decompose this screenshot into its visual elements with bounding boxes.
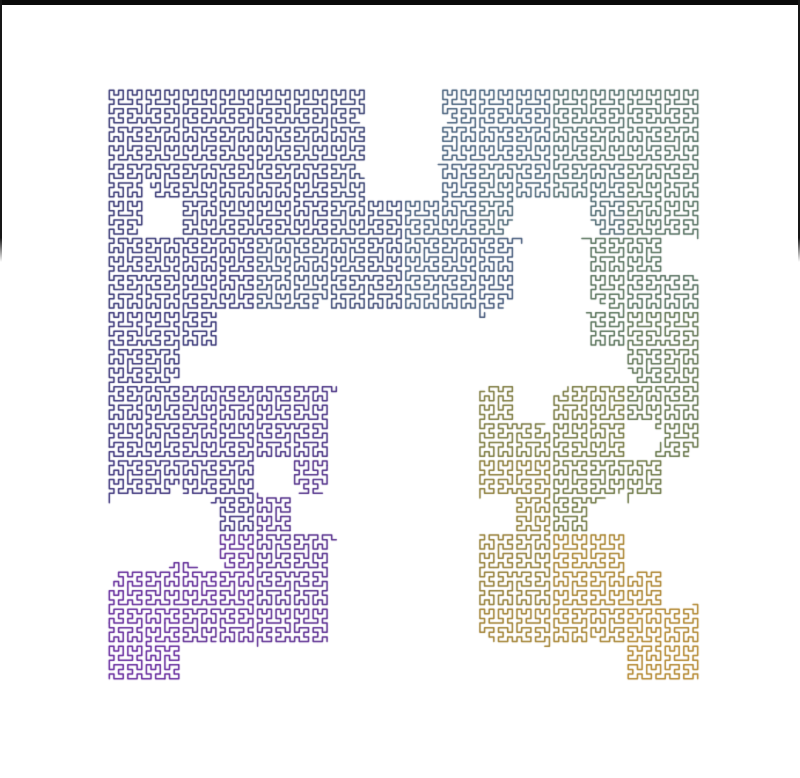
screenshot-root [0,0,800,778]
hilbert-curve-canvas [0,0,800,778]
window-left-edge [0,0,2,262]
window-top-edge [0,0,800,5]
